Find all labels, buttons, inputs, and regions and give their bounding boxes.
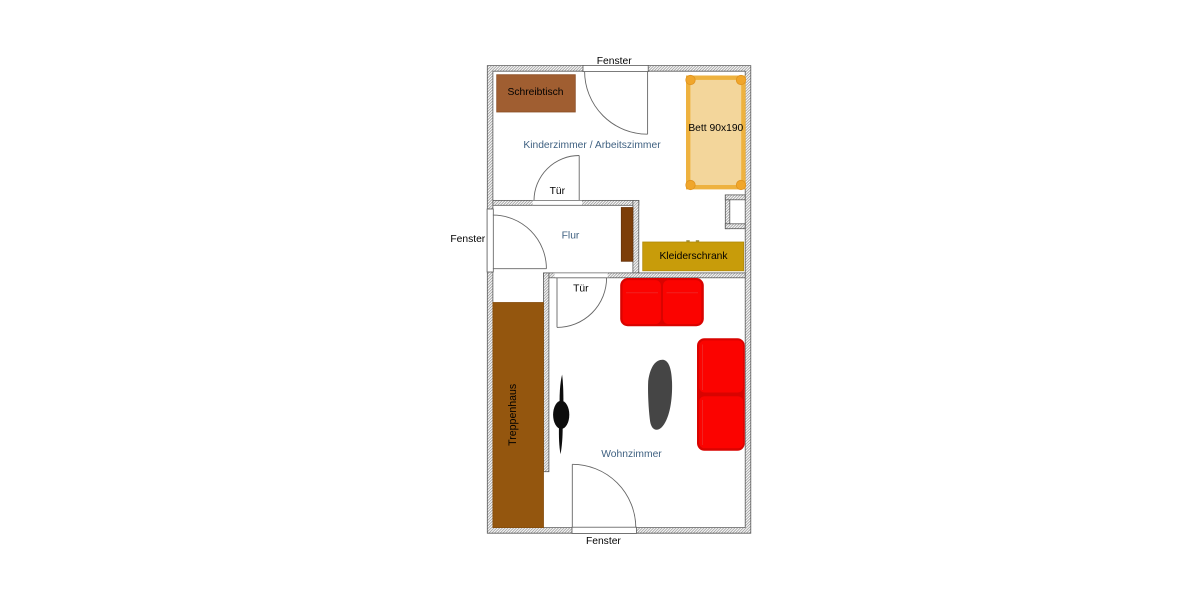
- svg-text:Kleiderschrank: Kleiderschrank: [659, 251, 728, 262]
- svg-text:Kinderzimmer / Arbeitszimmer: Kinderzimmer / Arbeitszimmer: [523, 140, 661, 151]
- svg-text:Treppenhaus: Treppenhaus: [507, 384, 519, 446]
- svg-text:Tür: Tür: [550, 186, 566, 197]
- svg-text:Fenster: Fenster: [450, 234, 485, 245]
- svg-text:Fenster: Fenster: [586, 536, 621, 547]
- svg-text:Fenster: Fenster: [597, 56, 632, 67]
- svg-text:Bett 90x190: Bett 90x190: [688, 123, 743, 134]
- svg-text:Flur: Flur: [562, 231, 580, 242]
- svg-text:Tür: Tür: [573, 283, 589, 294]
- svg-text:Schreibtisch: Schreibtisch: [507, 87, 563, 98]
- svg-text:Wohnzimmer: Wohnzimmer: [601, 449, 662, 460]
